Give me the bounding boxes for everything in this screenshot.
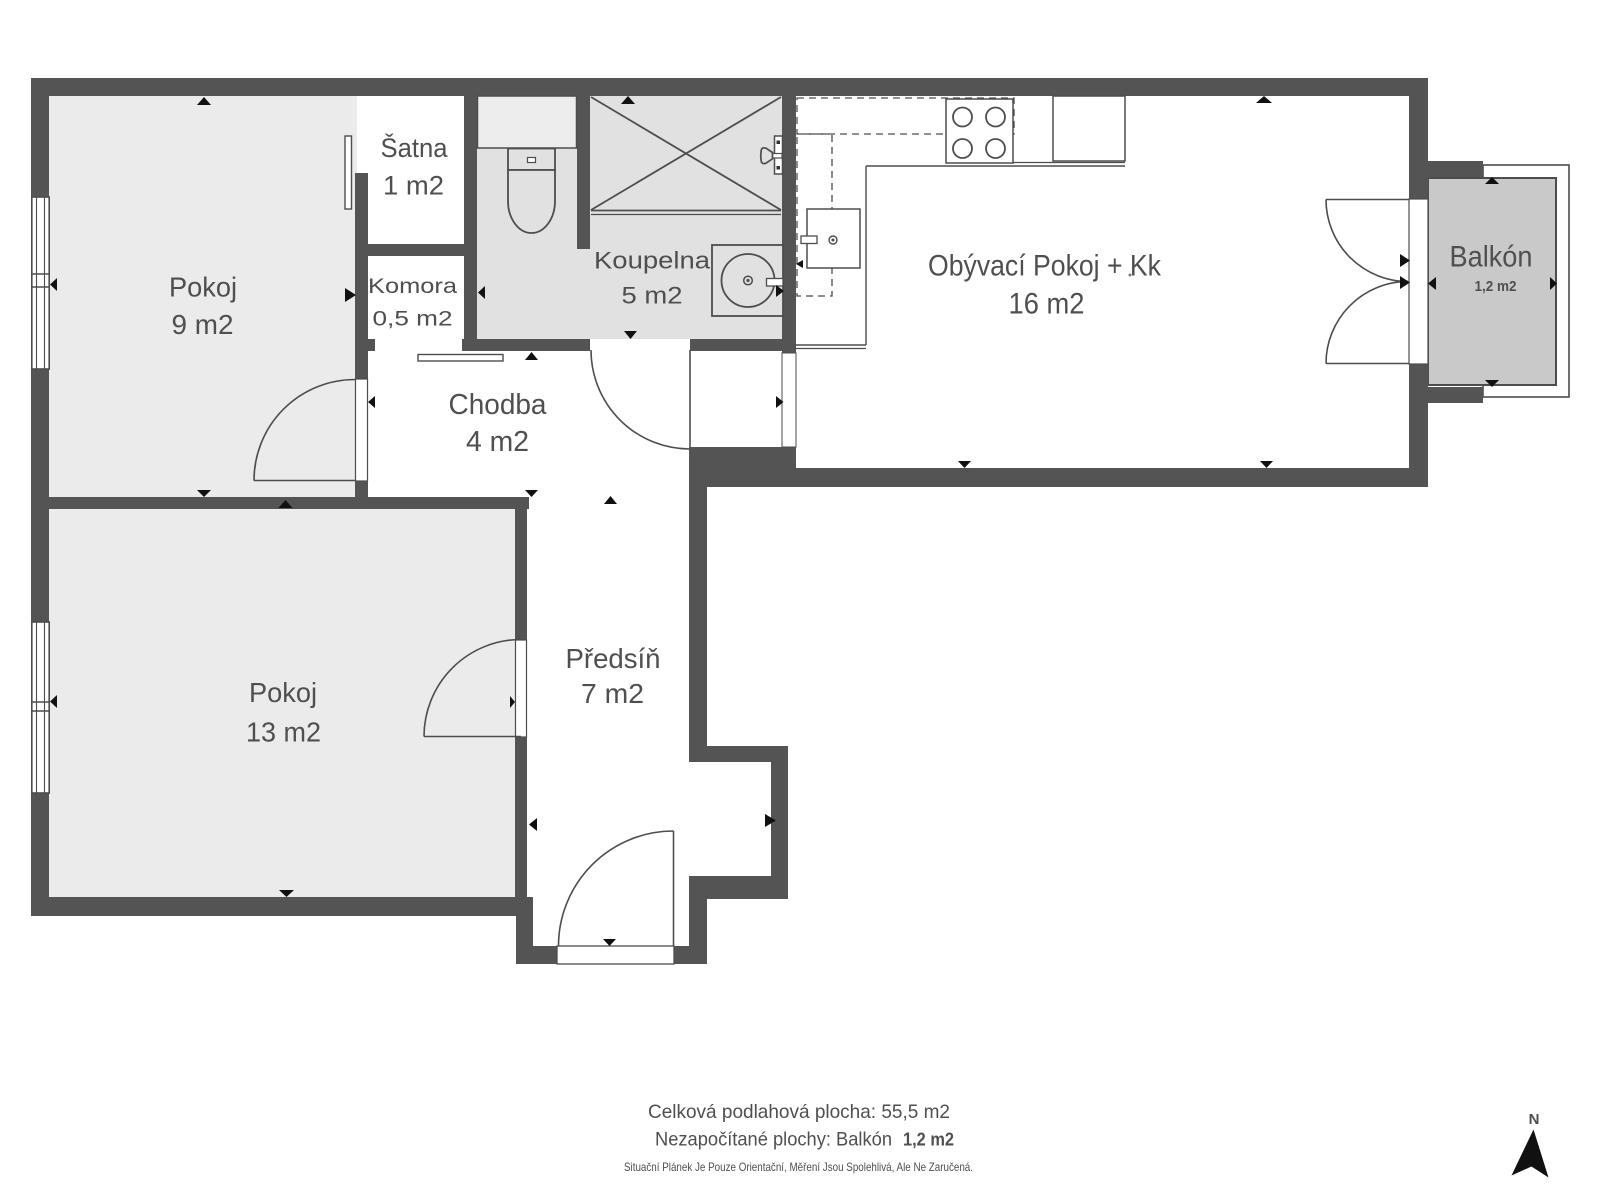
svg-text:Koupelna: Koupelna (594, 248, 711, 275)
svg-text:16 m2: 16 m2 (1009, 287, 1085, 320)
svg-text:N: N (1529, 1111, 1540, 1128)
svg-text:Celková podlahová plocha: 55,5: Celková podlahová plocha: 55,5 m2 (648, 1101, 950, 1123)
svg-text:Chodba: Chodba (449, 389, 548, 421)
svg-text:9 m2: 9 m2 (172, 309, 234, 340)
svg-text:1,2 m2: 1,2 m2 (903, 1128, 954, 1149)
svg-text:Pokoj: Pokoj (249, 677, 317, 708)
svg-text:Obývací Pokoj + Kk: Obývací Pokoj + Kk (928, 249, 1162, 282)
svg-text:4 m2: 4 m2 (466, 426, 529, 458)
svg-text:Předsíň: Předsíň (566, 643, 661, 674)
svg-text:1,2 m2: 1,2 m2 (1475, 278, 1517, 295)
svg-text:Balkón: Balkón (1450, 241, 1533, 274)
svg-text:0,5 m2: 0,5 m2 (373, 307, 453, 331)
svg-text:Pokoj: Pokoj (169, 272, 237, 303)
svg-text:1 m2: 1 m2 (383, 171, 444, 201)
svg-text:13 m2: 13 m2 (246, 717, 321, 748)
svg-text:Komora: Komora (368, 274, 457, 298)
svg-text:7 m2: 7 m2 (581, 678, 644, 709)
svg-text:Situační Plánek Je Pouze Orien: Situační Plánek Je Pouze Orientační, Měř… (624, 1160, 973, 1174)
svg-text:Nezapočítané plochy: Balkón: Nezapočítané plochy: Balkón (655, 1128, 892, 1150)
svg-text:5 m2: 5 m2 (622, 283, 683, 310)
svg-text:Šatna: Šatna (381, 132, 449, 163)
